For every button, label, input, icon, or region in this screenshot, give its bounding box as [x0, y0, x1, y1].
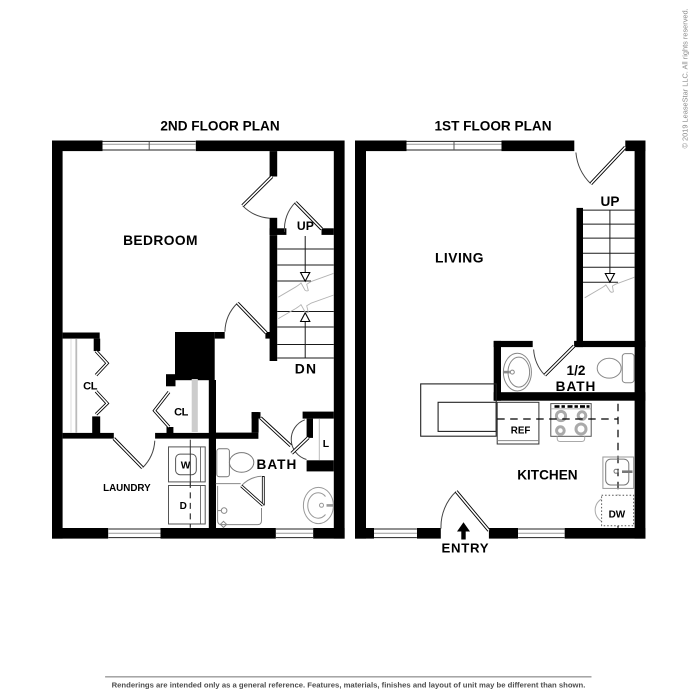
svg-text:CL: CL — [174, 407, 189, 419]
svg-text:BATH: BATH — [257, 457, 298, 472]
svg-text:Renderings are intended only a: Renderings are intended only as a genera… — [112, 680, 586, 689]
svg-text:UP: UP — [601, 194, 620, 209]
svg-text:1/2: 1/2 — [567, 363, 586, 378]
svg-text:CL: CL — [83, 381, 98, 393]
svg-text:REF: REF — [511, 425, 531, 436]
svg-text:L: L — [323, 439, 330, 450]
svg-text:UP: UP — [297, 219, 314, 233]
svg-text:2ND FLOOR PLAN: 2ND FLOOR PLAN — [160, 118, 279, 133]
svg-text:LAUNDRY: LAUNDRY — [103, 483, 151, 494]
svg-text:© 2019 LeaseStar LLC. All righ: © 2019 LeaseStar LLC. All rights reserve… — [681, 8, 690, 148]
svg-text:BEDROOM: BEDROOM — [123, 233, 198, 248]
svg-text:BATH: BATH — [556, 379, 597, 394]
svg-text:LIVING: LIVING — [435, 251, 484, 266]
svg-text:1ST FLOOR PLAN: 1ST FLOOR PLAN — [434, 118, 551, 133]
svg-text:KITCHEN: KITCHEN — [517, 468, 577, 483]
svg-text:W: W — [181, 460, 191, 471]
svg-text:ENTRY: ENTRY — [442, 541, 490, 556]
svg-text:D: D — [180, 501, 187, 512]
svg-text:DN: DN — [295, 361, 317, 377]
svg-text:DW: DW — [609, 510, 626, 521]
